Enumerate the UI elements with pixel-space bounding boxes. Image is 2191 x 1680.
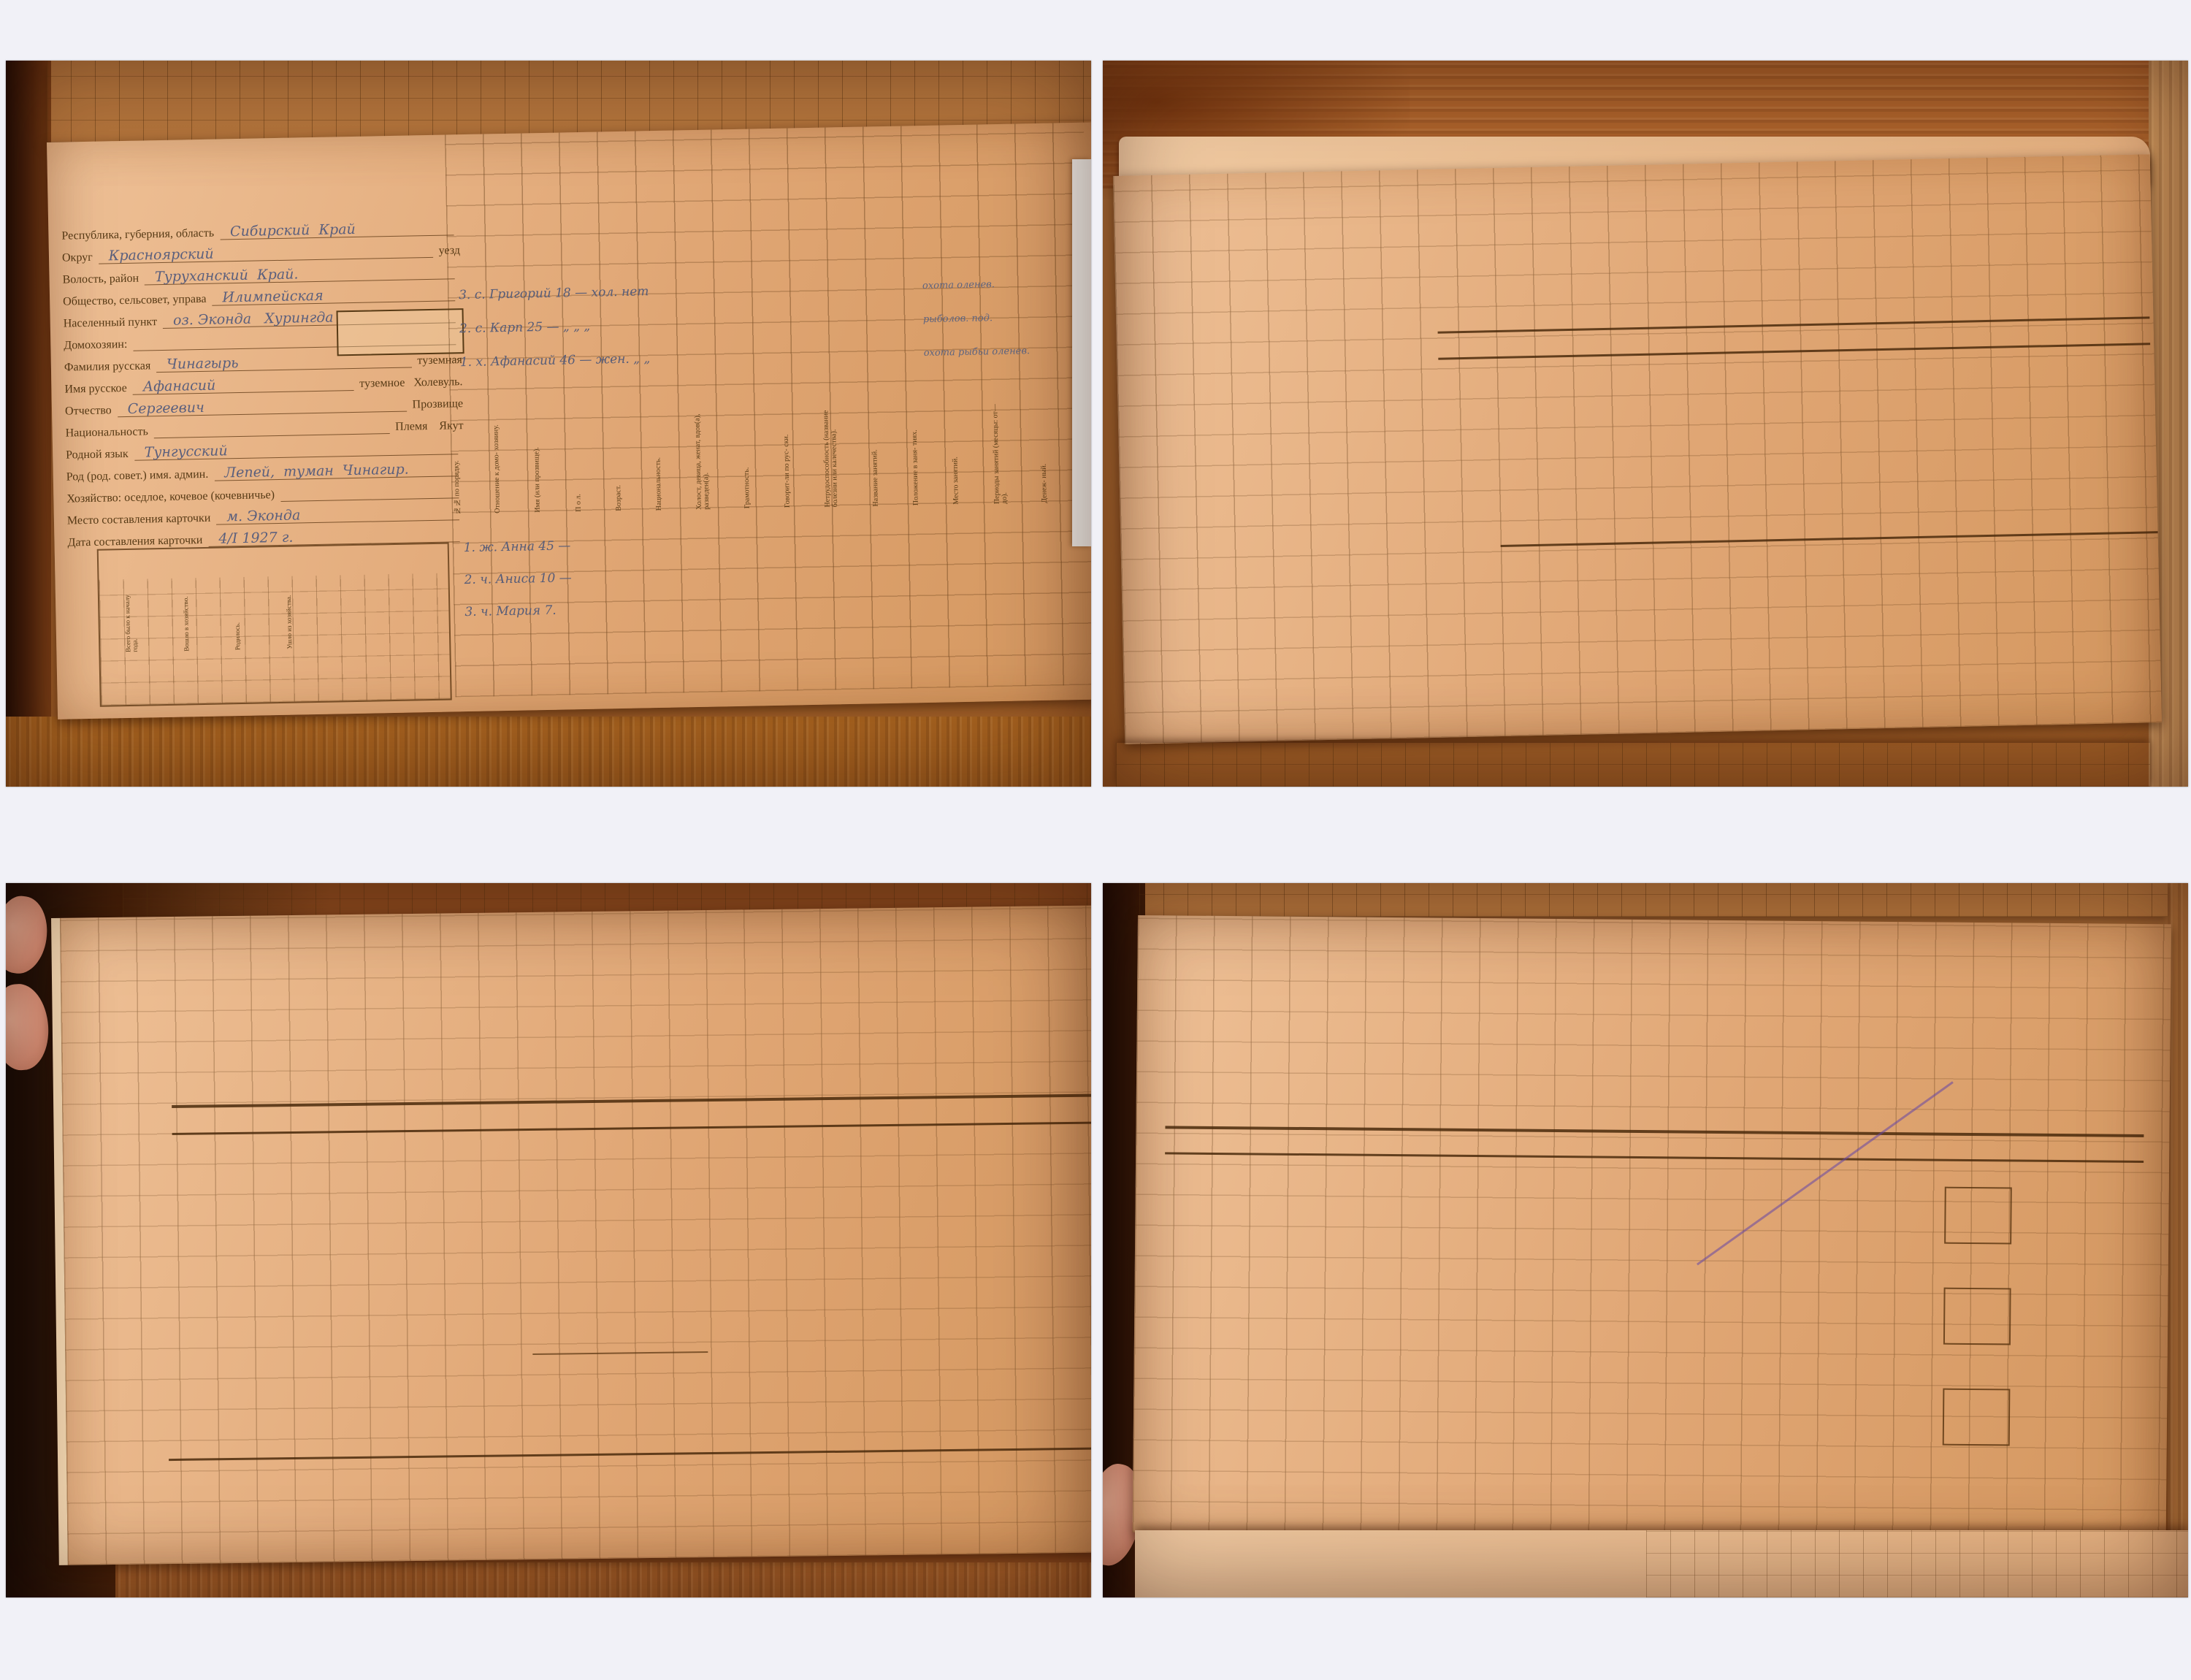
wood-left bbox=[6, 61, 51, 787]
wood-bottom bbox=[115, 1562, 1091, 1597]
card-back-sheet bbox=[1113, 154, 2162, 744]
archive-contact-sheet: Республика, губерния, область Сибирский … bbox=[0, 0, 2191, 1680]
photo-041: Республика, губерния, область Сибирский … bbox=[6, 61, 1091, 787]
gear-rows bbox=[2086, 248, 2152, 283]
next-page-strip bbox=[1116, 743, 2150, 787]
roman-cells-row-2 bbox=[1943, 1288, 2011, 1345]
fur-animal-labels bbox=[207, 1008, 1070, 1099]
card-042v-sheet bbox=[1133, 915, 2171, 1541]
card-front-sheet: Республика, губерния, область Сибирский … bbox=[47, 123, 1091, 719]
note-lines bbox=[705, 1184, 1026, 1215]
building-labels bbox=[210, 1193, 663, 1272]
wood-bottom bbox=[6, 717, 1091, 787]
right-industry-rows bbox=[2019, 444, 2107, 483]
card-title bbox=[112, 183, 462, 189]
livestock-grid bbox=[1113, 154, 2162, 744]
bookmark-strip bbox=[1072, 159, 1091, 546]
next-card-grid bbox=[1646, 1530, 2188, 1597]
household-number-box bbox=[336, 308, 464, 356]
next-card-strip bbox=[1135, 1530, 2188, 1597]
trap-counts bbox=[1351, 456, 1377, 489]
bottom-product-labels bbox=[191, 1470, 1068, 1539]
column-headers-band: №№ по порядку.Отношение к домо- хозяину.… bbox=[452, 402, 1089, 515]
movement-title bbox=[99, 547, 448, 554]
industry-rows bbox=[1510, 460, 1627, 484]
left-boat-rows bbox=[70, 931, 151, 971]
hire-labels-band bbox=[1503, 364, 2147, 443]
caption-041 bbox=[6, 791, 1091, 798]
movement-table: Всего было к началу года.Вошло в хозяйст… bbox=[97, 543, 452, 707]
member-rows: 3. с. Григорий 18 — хол. нет2. с. Карп 2… bbox=[459, 280, 899, 389]
caption-042v bbox=[1103, 1606, 2188, 1613]
female-member-rows: 1. ж. Анна 45 —2. ч. Аниса 10 —3. ч. Мар… bbox=[464, 533, 845, 637]
photo-042 bbox=[6, 883, 1091, 1597]
hay-rows bbox=[2103, 1245, 2150, 1280]
top-page-edge bbox=[1139, 883, 2168, 917]
deer-stock-rows bbox=[1508, 640, 1582, 669]
wood-right bbox=[2168, 883, 2188, 1597]
card-042-sheet bbox=[51, 905, 1091, 1565]
movement-columns: Всего было к началу года.Вошло в хозяйст… bbox=[124, 579, 294, 652]
gun-rows bbox=[1188, 389, 1265, 421]
caption-041v bbox=[1103, 791, 2188, 798]
roman-cell bbox=[1944, 1187, 2012, 1245]
roman-cell bbox=[1943, 1288, 2011, 1345]
deer-cols bbox=[1595, 578, 1903, 625]
form-fields: Республика, губерния, область Сибирский … bbox=[61, 213, 466, 549]
occupation-notes: охота оленев.рыболов. под.охота рыбьи ол… bbox=[922, 278, 1049, 381]
roman-cell bbox=[1943, 1389, 2011, 1446]
credit-rows bbox=[1588, 1325, 1687, 1364]
caption-042 bbox=[6, 1606, 1091, 1613]
photo-041v bbox=[1103, 61, 2188, 787]
goods-labels bbox=[1317, 1440, 2099, 1509]
photo-042v bbox=[1103, 883, 2188, 1597]
gear-rows-2 bbox=[2089, 370, 2155, 402]
roman-cells-row-3 bbox=[1943, 1389, 2011, 1446]
roman-cells-row-1 bbox=[1944, 1187, 2012, 1245]
trap-rows bbox=[1376, 455, 1450, 489]
census-line bbox=[121, 164, 464, 170]
